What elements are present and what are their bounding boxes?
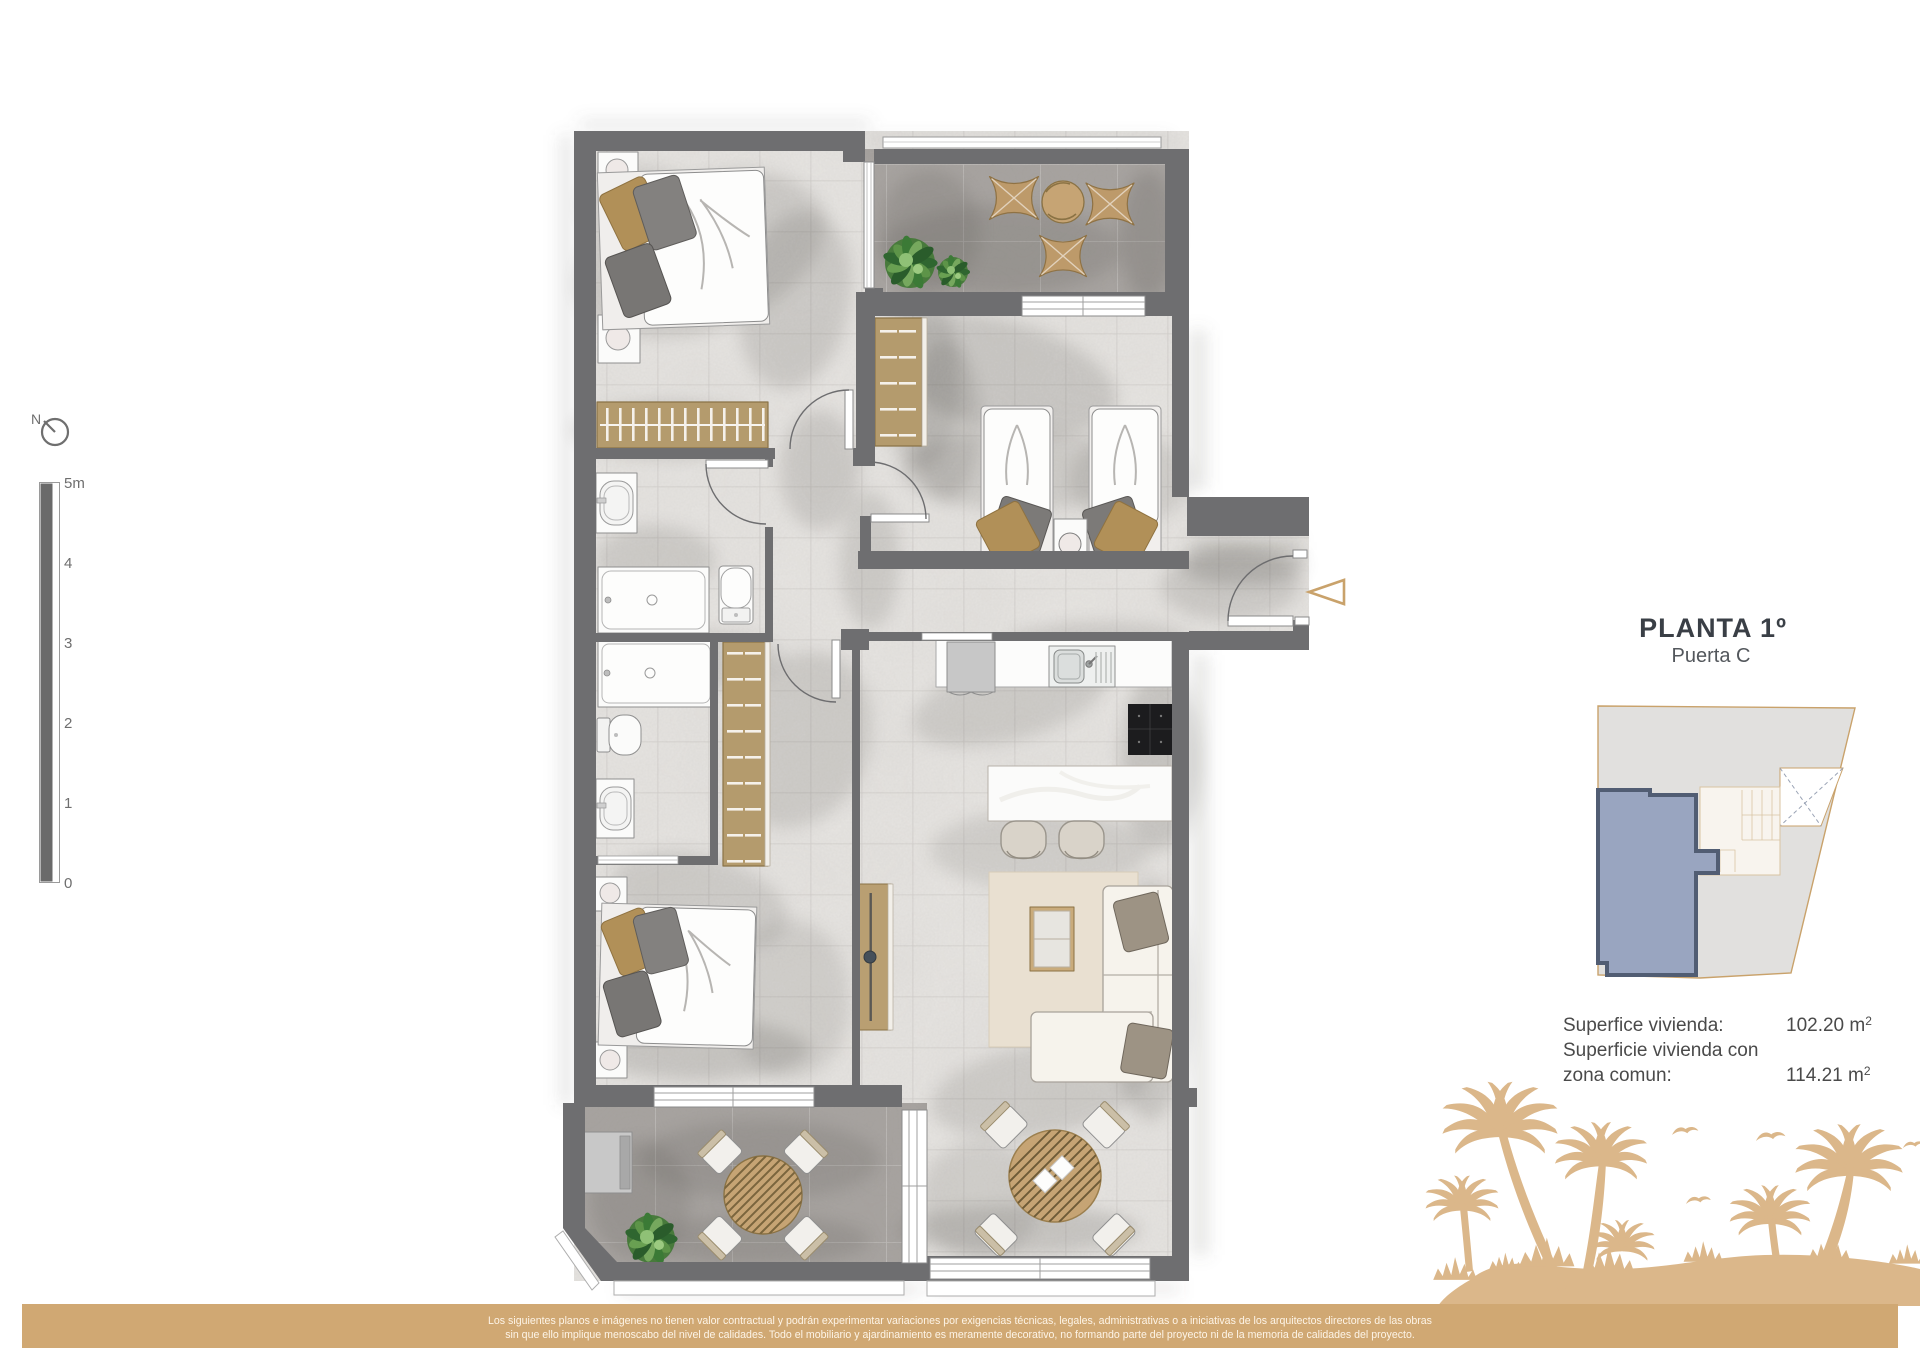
svg-text:Superfice vivienda:: Superfice vivienda: <box>1563 1015 1724 1036</box>
svg-text:1: 1 <box>64 795 72 812</box>
svg-text:0: 0 <box>64 875 72 892</box>
svg-text:4: 4 <box>64 555 72 572</box>
svg-text:sin que ello implique menoscab: sin que ello implique menoscabo del nive… <box>505 1329 1415 1341</box>
svg-text:102.20 m2: 102.20 m2 <box>1786 1014 1872 1036</box>
svg-text:5m: 5m <box>64 475 85 492</box>
svg-text:Puerta C: Puerta C <box>1672 645 1751 667</box>
svg-text:zona comun:: zona comun: <box>1563 1065 1672 1086</box>
svg-text:2: 2 <box>64 715 72 732</box>
svg-text:PLANTA 1º: PLANTA 1º <box>1639 613 1787 643</box>
svg-text:3: 3 <box>64 635 72 652</box>
svg-text:114.21 m2: 114.21 m2 <box>1786 1064 1871 1086</box>
svg-text:Los siguientes planos e imágen: Los siguientes planos e imágenes no tien… <box>488 1315 1432 1327</box>
svg-text:Superficie vivienda con: Superficie vivienda con <box>1563 1040 1758 1061</box>
svg-text:N: N <box>31 411 41 427</box>
